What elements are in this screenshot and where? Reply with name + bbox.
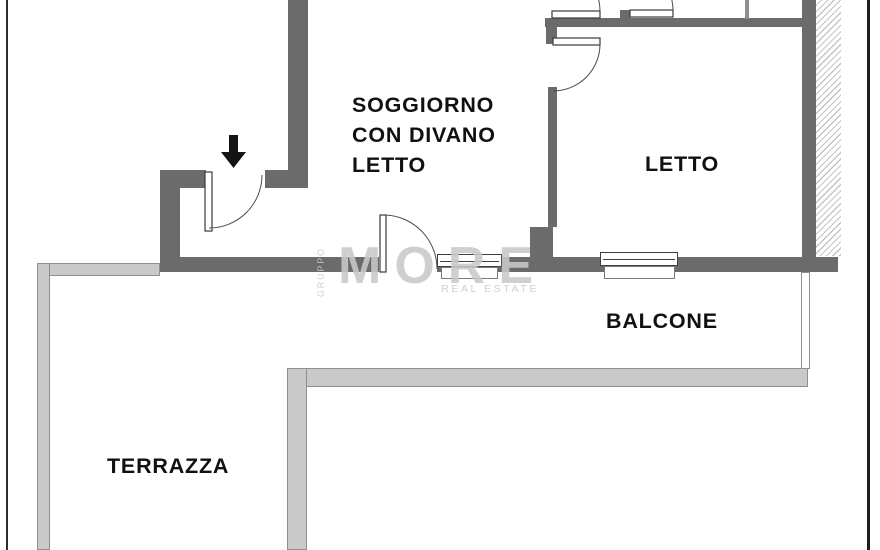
room-label-terrazza: TERRAZZA (107, 451, 229, 481)
room-label-letto: LETTO (645, 149, 719, 179)
clipped-door-b-swing-arc (630, 0, 673, 10)
balcony-door-swing-arc (386, 215, 437, 269)
entrance-door-swing-arc (209, 175, 262, 228)
clipped-door-b-hinge (620, 10, 630, 18)
room-label-balcone: BALCONE (606, 306, 718, 336)
clipped-door-a-swing-arc (552, 0, 600, 11)
letto-door-swing-arc (553, 44, 600, 91)
clipped-door-b-leaf (630, 10, 673, 17)
clipped-door-a-leaf (552, 11, 600, 18)
entrance-door-leaf (205, 172, 212, 231)
balcony-door-leaf (380, 215, 386, 272)
room-label-soggiorno: SOGGIORNO CON DIVANO LETTO (352, 90, 496, 180)
floor-plan: GRUPPO MORE REAL ESTATE SOGGIORNO CON DI… (0, 0, 880, 550)
entrance-arrow-icon (221, 135, 246, 168)
letto-door-leaf (553, 38, 600, 45)
